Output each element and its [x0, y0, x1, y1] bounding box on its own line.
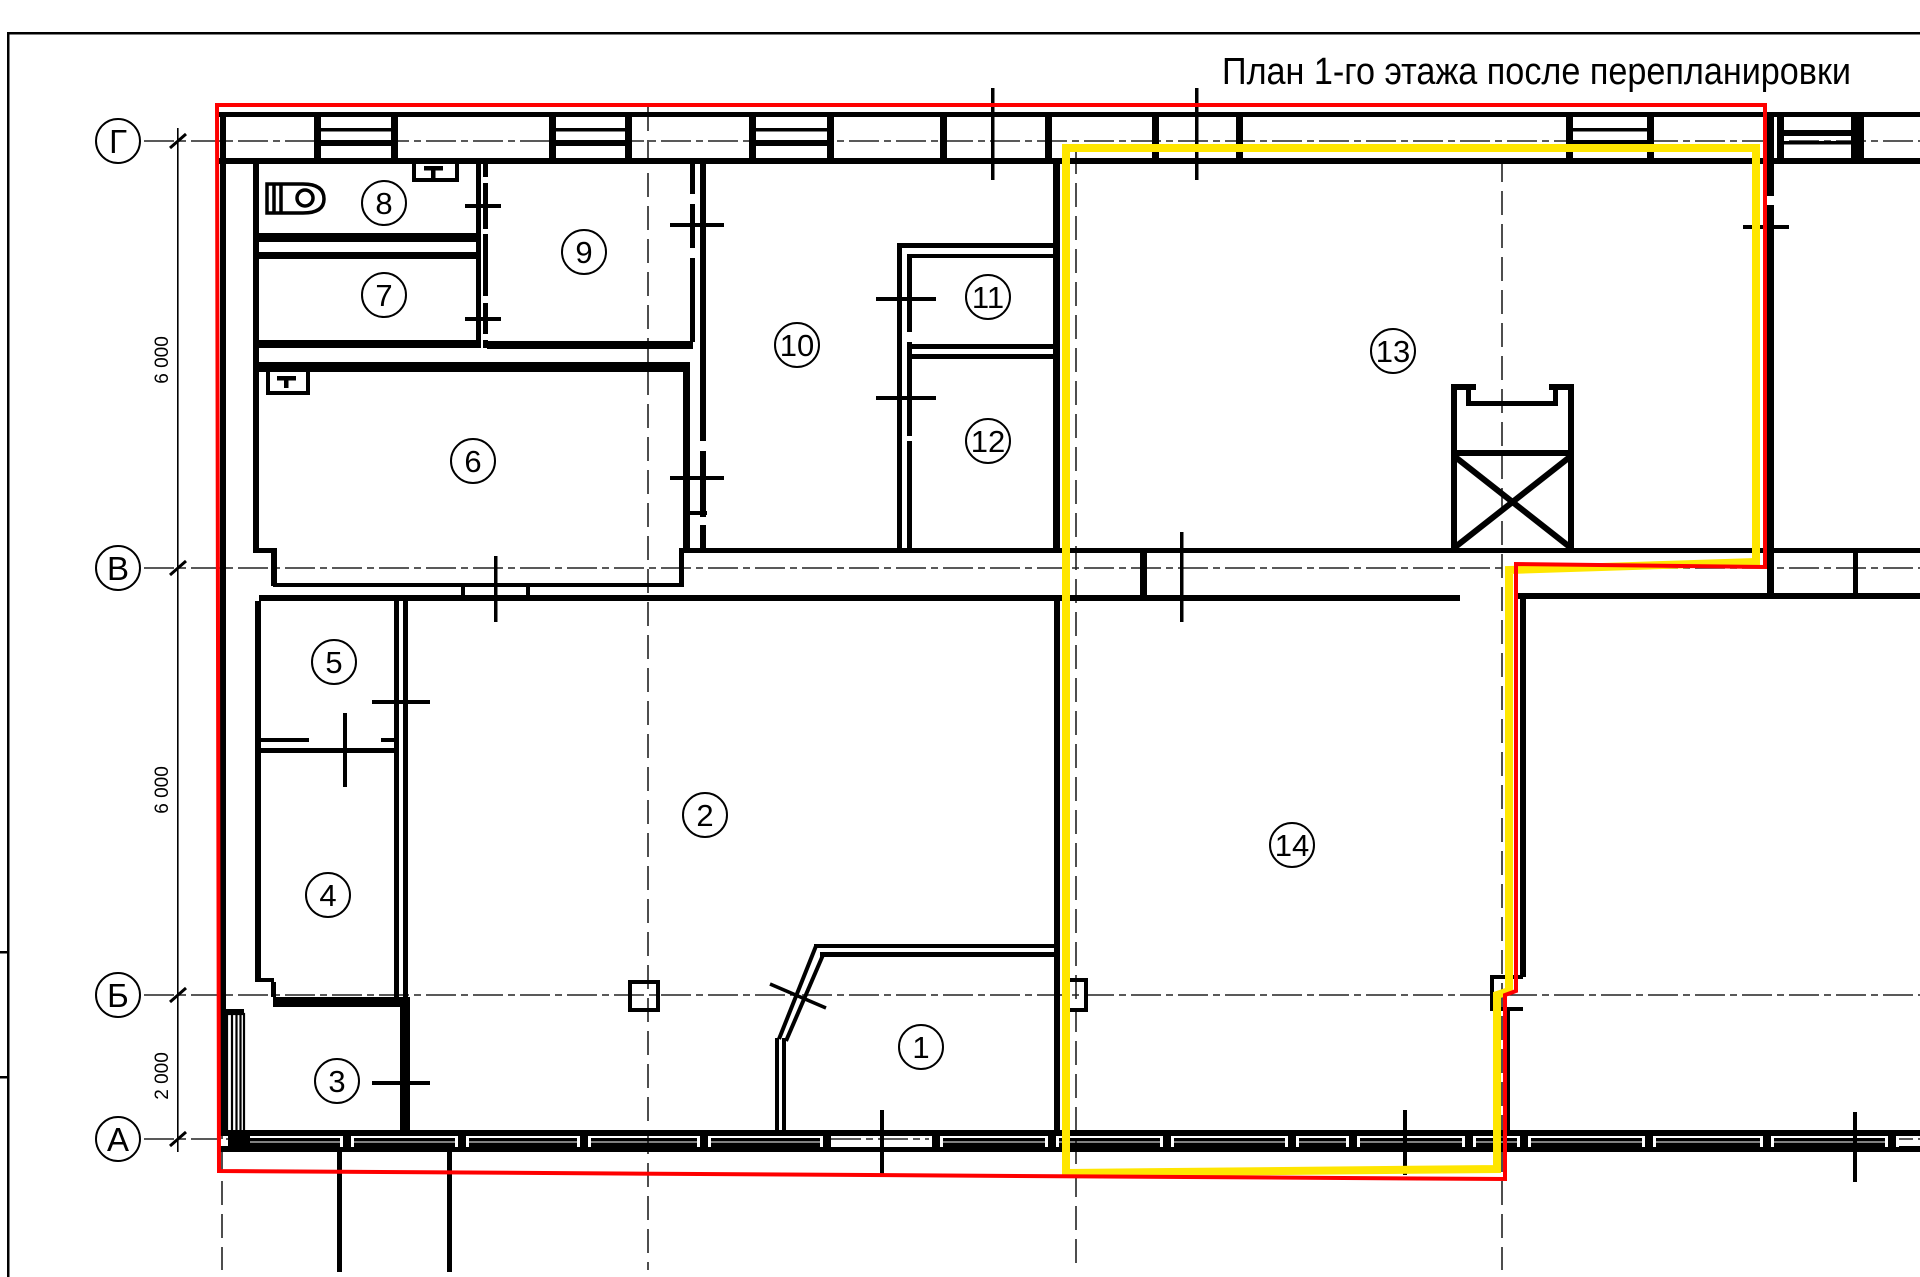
svg-text:10: 10 [780, 328, 814, 363]
svg-text:3: 3 [328, 1064, 345, 1099]
svg-text:1: 1 [912, 1030, 929, 1065]
svg-text:Г: Г [109, 123, 127, 160]
svg-text:6 000: 6 000 [152, 336, 173, 384]
svg-text:В: В [107, 550, 129, 587]
svg-text:2: 2 [696, 798, 713, 833]
svg-text:12: 12 [971, 424, 1005, 459]
svg-text:9: 9 [575, 235, 592, 270]
svg-text:5: 5 [325, 645, 342, 680]
svg-text:7: 7 [375, 278, 392, 313]
svg-text:4: 4 [319, 878, 336, 913]
svg-text:А: А [107, 1121, 129, 1158]
svg-text:13: 13 [1376, 334, 1410, 369]
svg-text:2 000: 2 000 [152, 1052, 173, 1100]
svg-text:8: 8 [375, 186, 392, 221]
svg-text:14: 14 [1275, 828, 1309, 863]
svg-text:11: 11 [972, 280, 1004, 315]
svg-text:План 1-го этажа после переплан: План 1-го этажа после перепланировки [1222, 51, 1851, 93]
svg-text:6 000: 6 000 [152, 766, 173, 814]
svg-text:Б: Б [107, 977, 129, 1014]
svg-text:6: 6 [464, 444, 481, 479]
